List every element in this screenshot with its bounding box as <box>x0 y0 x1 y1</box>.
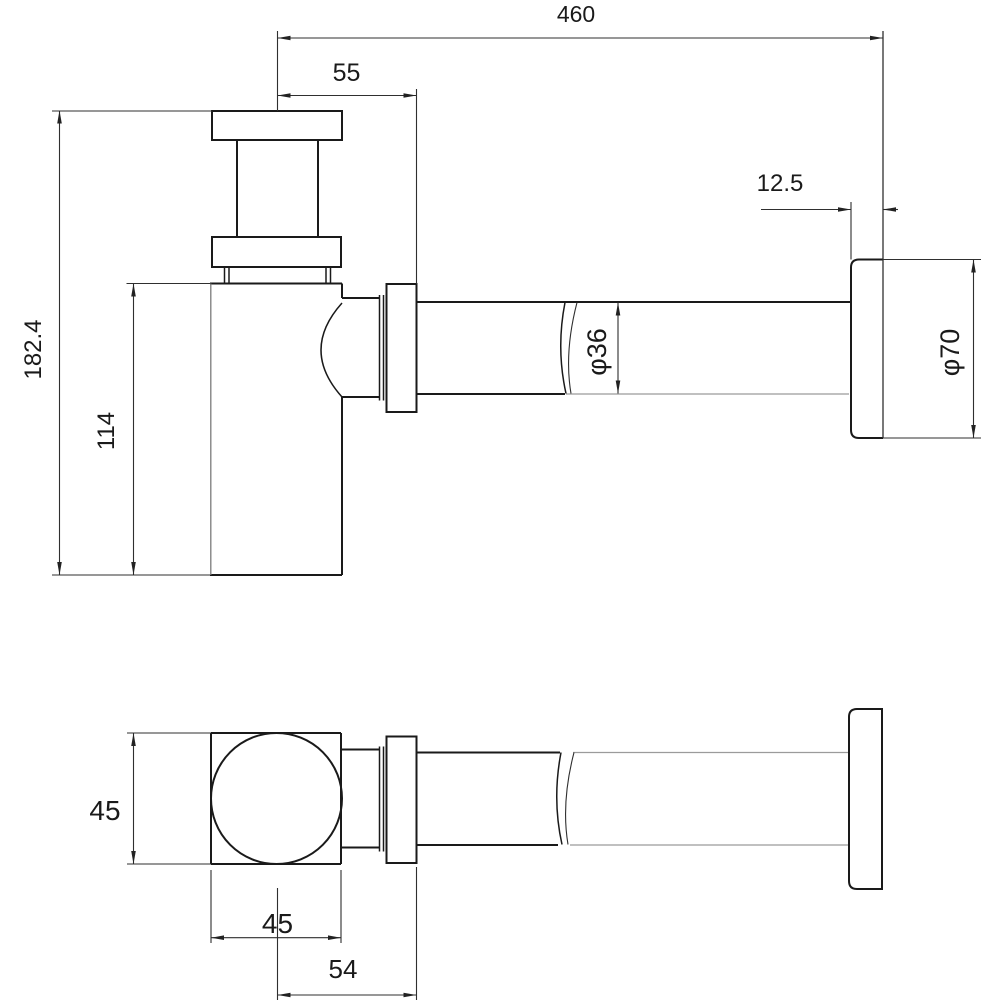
technical-drawing: 460 55 12.5 182.4 <box>0 0 1000 1000</box>
dim-flange-thickness-label: 12.5 <box>757 170 804 197</box>
dim-overall-height-label: 182.4 <box>20 319 47 379</box>
drawing-canvas: 460 55 12.5 182.4 <box>0 0 1000 1000</box>
dim-overall-length-label: 460 <box>557 1 595 27</box>
dim-inlet-to-flange-label: 55 <box>333 59 361 87</box>
dim-center-to-flange-label: 54 <box>329 954 358 984</box>
dim-wall-flange-diameter-label: φ70 <box>935 329 965 377</box>
dim-body-height-label: 114 <box>93 412 120 450</box>
dim-pipe-diameter-label: φ36 <box>582 328 612 376</box>
dim-body-depth-label: 45 <box>89 795 120 826</box>
